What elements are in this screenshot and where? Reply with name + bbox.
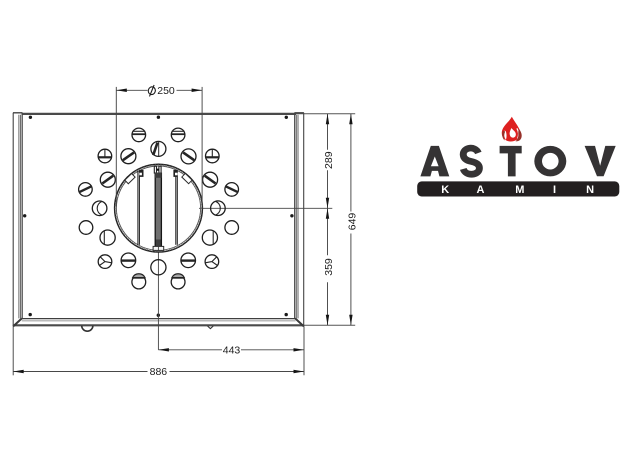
svg-text:649: 649 <box>346 213 358 231</box>
svg-text:I: I <box>553 184 556 196</box>
svg-text:359: 359 <box>323 258 335 276</box>
svg-text:289: 289 <box>323 151 335 169</box>
svg-text:886: 886 <box>150 366 168 378</box>
svg-text:250: 250 <box>157 85 175 97</box>
svg-text:N: N <box>586 184 594 196</box>
svg-text:443: 443 <box>223 345 241 357</box>
svg-text:K: K <box>441 184 449 196</box>
svg-text:M: M <box>515 184 524 196</box>
svg-text:A: A <box>477 184 485 196</box>
